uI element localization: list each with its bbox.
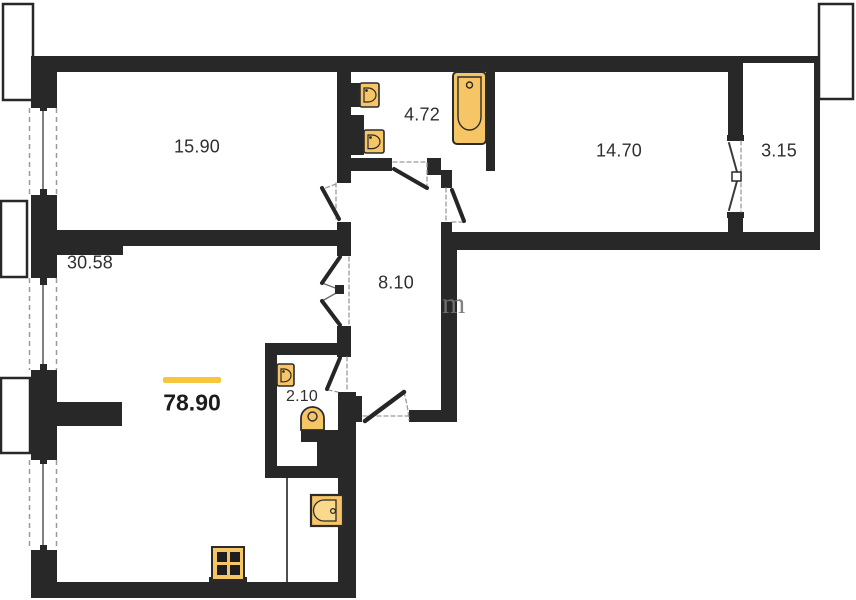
wall-left-pier — [31, 195, 57, 278]
door-room — [446, 188, 464, 222]
watermark-text: m — [442, 287, 465, 320]
wall-entry-right — [409, 410, 457, 422]
door-bedroom — [322, 183, 339, 219]
kitchen-sink-icon — [311, 495, 343, 526]
wall-bedroom-living-divider — [57, 230, 351, 246]
sink-icon — [277, 364, 294, 386]
wall-balcony-pier-top — [728, 56, 743, 135]
sink-mount-stub — [351, 115, 364, 155]
wall-bath-south-left — [337, 158, 392, 171]
room-area-label-balcony: 3.15 — [761, 141, 797, 162]
wall-wc-west — [265, 343, 277, 478]
door-living-double — [322, 257, 349, 325]
door-jamb-cap — [727, 135, 744, 141]
wall-hall-east-upper — [441, 222, 452, 232]
wall-wc-south — [265, 466, 356, 478]
thin-partition-line — [286, 478, 288, 582]
total-area-highlight-bar — [163, 377, 221, 383]
door-wc — [327, 357, 347, 392]
room-area-label-room: 14.70 — [596, 141, 642, 162]
wall-room-south — [452, 232, 820, 250]
total-area-label: 78.90 — [163, 390, 221, 417]
room-area-label-living: 30.58 — [67, 253, 113, 274]
sink-icon — [360, 83, 379, 107]
wall-hall-east-upper — [441, 170, 452, 188]
wall-left-pier — [31, 56, 57, 108]
room-area-label-bedroom: 15.90 — [174, 137, 220, 158]
floor-plan: m 15.90 4.72 14.70 3.15 30.58 8.10 2.10 … — [0, 0, 856, 600]
window-symbol — [30, 278, 57, 371]
pilaster-outline — [1, 201, 27, 277]
wall-wc-north — [265, 343, 350, 355]
wall-balcony-top-thin — [741, 56, 818, 63]
windows — [30, 104, 57, 552]
window-symbol — [30, 104, 57, 196]
door-bathroom — [393, 162, 427, 188]
wall-bottom — [31, 582, 356, 598]
bathtub-icon — [453, 72, 486, 144]
pilaster-outline — [819, 4, 853, 99]
wall-top — [33, 56, 743, 72]
room-area-label-bathroom: 4.72 — [404, 105, 440, 126]
window-symbol — [30, 457, 57, 552]
floor-plan-drawing: m — [0, 0, 856, 600]
wall-balcony-right-thin — [814, 56, 820, 250]
wall-bath-south-right — [427, 158, 441, 175]
wall-left-pier — [31, 370, 57, 460]
door-entrance — [363, 392, 409, 421]
wall-balcony-pier-bottom — [728, 218, 743, 250]
pilaster-outline — [1, 378, 30, 453]
wall-entry-left-jamb — [350, 396, 362, 422]
wall-hall-west-pier — [337, 222, 351, 256]
room-area-label-wc: 2.10 — [286, 388, 318, 406]
sink-icon — [364, 130, 384, 153]
door-balcony-french — [729, 141, 741, 212]
toilet-pedestal — [301, 430, 324, 442]
wall-hall-east — [441, 232, 457, 410]
door-jamb-cap — [727, 212, 744, 218]
stove-icon — [209, 547, 247, 582]
wall-bath-east — [486, 72, 495, 171]
toilet-icon — [301, 407, 324, 430]
room-area-label-hallway: 8.10 — [378, 273, 414, 294]
wall-kitchen-stub — [57, 402, 122, 426]
pilaster-outline — [3, 4, 33, 100]
walls — [31, 56, 820, 598]
